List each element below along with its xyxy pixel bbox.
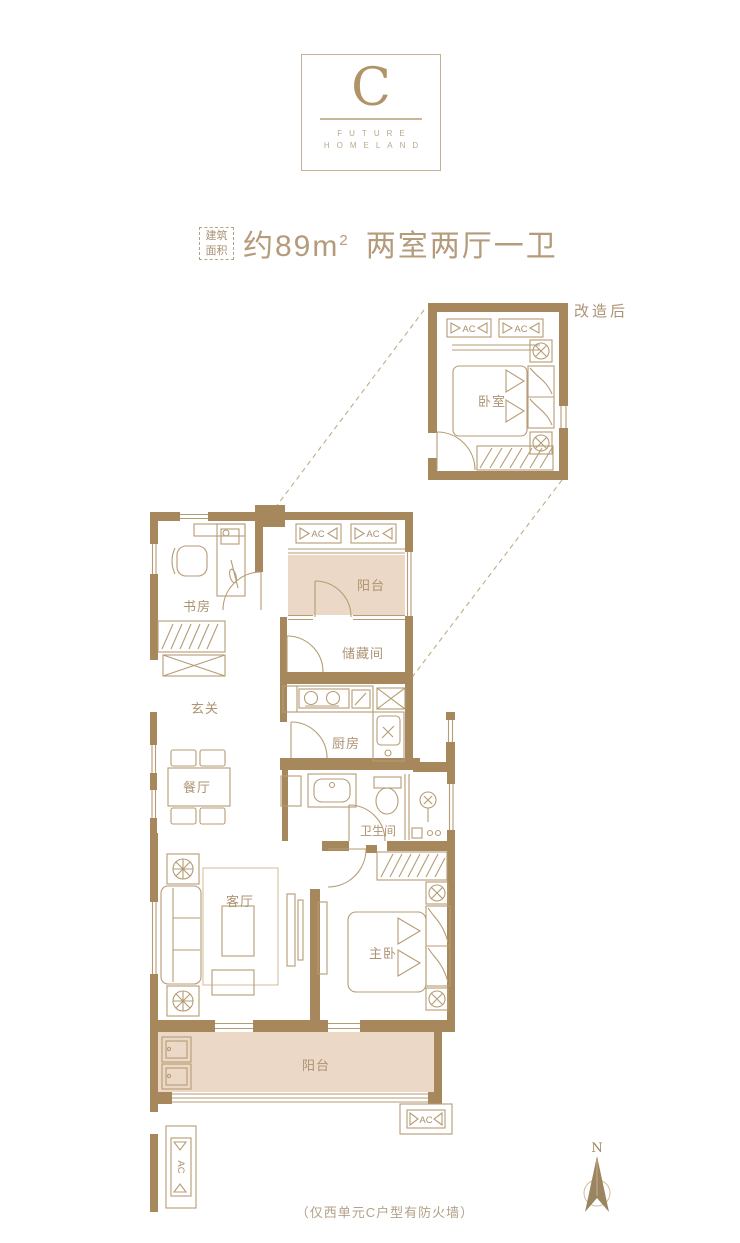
- washbasin-icon: [308, 774, 356, 807]
- plant-table-icon: [167, 986, 199, 1016]
- side-table-icon: [212, 970, 254, 995]
- renovated-annotation: 改造后: [574, 303, 628, 320]
- fixture-icon: [530, 340, 552, 362]
- svg-text:AC: AC: [419, 1115, 432, 1126]
- room-label-master: 主卧: [369, 946, 397, 961]
- wardrobe-icon: [528, 366, 554, 428]
- room-label-bathroom: 卫生间: [360, 824, 396, 838]
- footnote: （仅西单元C户型有防火墙）: [296, 1205, 474, 1220]
- svg-text:AC: AC: [462, 324, 475, 335]
- room-label-entry: 玄关: [191, 701, 219, 716]
- study-room: 书房: [158, 524, 261, 676]
- cutting-board-icon: [352, 690, 370, 708]
- closet-shelf-icon: [477, 446, 553, 470]
- ac-unit-icon: AC: [400, 1104, 452, 1134]
- north-compass-icon: N: [584, 1141, 610, 1212]
- desk-icon: [194, 524, 245, 596]
- renovated-bedroom-plan: AC AC: [428, 303, 568, 480]
- door-icon: [437, 432, 475, 470]
- toilet-icon: [374, 777, 401, 814]
- sofa-icon: [161, 886, 201, 984]
- kitchen-door-icon: [291, 722, 327, 758]
- coffee-table-icon: [222, 906, 254, 956]
- stove-icon: [299, 689, 349, 708]
- bookshelf-icon: [158, 621, 225, 652]
- master-door-icon: [328, 849, 366, 887]
- plant-table-icon: [167, 854, 199, 884]
- storage-door-icon: [287, 636, 323, 672]
- bathroom-room: 卫生间: [281, 774, 441, 841]
- room-label-living: 客厅: [226, 894, 254, 909]
- ac-unit-icon: AC: [499, 319, 543, 337]
- room-label-storage: 储藏间: [342, 646, 384, 661]
- cabinet-icon: [377, 688, 405, 709]
- room-label-detail-bedroom: 卧室: [478, 394, 506, 409]
- balcony-top-floor: [288, 555, 405, 615]
- svg-text:AC: AC: [514, 324, 527, 335]
- dining-room: 餐厅: [168, 750, 230, 824]
- floorplan-drawing: AC AC: [0, 0, 740, 1243]
- fixture-icon: [426, 882, 448, 904]
- svg-text:AC: AC: [175, 1160, 186, 1173]
- ac-unit-icon: AC: [351, 524, 396, 543]
- kitchen-room: 厨房: [283, 686, 405, 761]
- room-label-balcony-bottom: 阳台: [302, 1058, 330, 1073]
- room-label-balcony-top: 阳台: [357, 578, 385, 593]
- room-label-kitchen: 厨房: [332, 736, 360, 751]
- ac-unit-icon: AC: [296, 524, 341, 543]
- sink-icon: [373, 712, 404, 761]
- wardrobe-icon: [426, 906, 450, 986]
- master-bedroom: 主卧: [318, 849, 450, 1010]
- floorplan-page: { "logo": { "letter": "C", "line1": "FUT…: [0, 0, 740, 1243]
- living-room: 客厅: [161, 854, 303, 1016]
- ac-unit-icon: AC: [166, 1126, 196, 1208]
- ac-unit-icon: AC: [447, 319, 491, 337]
- svg-text:AC: AC: [311, 529, 324, 540]
- room-label-dining: 餐厅: [183, 780, 211, 795]
- rug-icon: [203, 868, 278, 985]
- svg-text:N: N: [591, 1141, 602, 1156]
- fixture-icon: [426, 988, 448, 1010]
- room-label-study: 书房: [183, 599, 211, 614]
- cabinet-icon: [163, 655, 225, 676]
- svg-text:AC: AC: [366, 529, 379, 540]
- shower-icon: [412, 792, 441, 838]
- chair-icon: [172, 546, 207, 576]
- balcony-bottom-floor: [158, 1032, 434, 1092]
- closet-shelf-icon: [377, 852, 447, 880]
- study-door-icon: [223, 572, 261, 610]
- tv-cabinet-icon: [287, 894, 303, 966]
